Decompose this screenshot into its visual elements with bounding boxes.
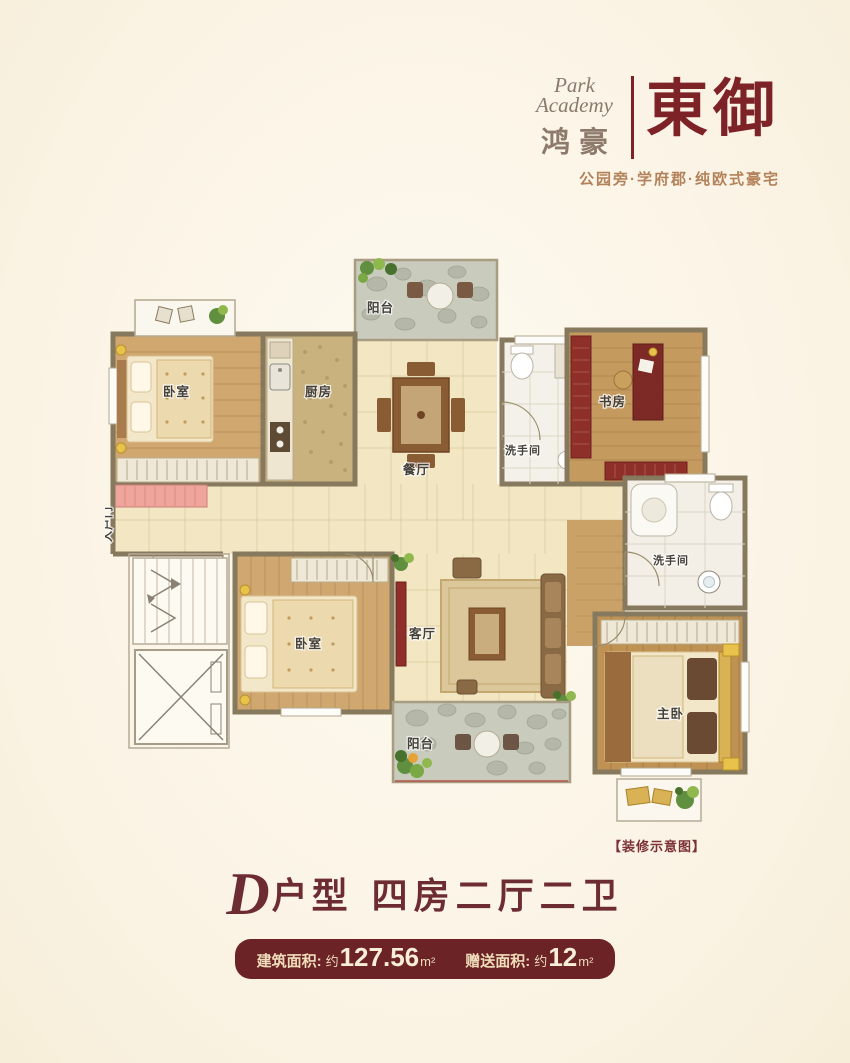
gift-area-value: 12: [548, 942, 577, 973]
room-balcony-top: 阳台: [355, 258, 497, 340]
gift-area: 赠送面积: 约 12 m²: [465, 942, 593, 973]
kitchen-counter: [267, 338, 293, 480]
room-label: 书房: [599, 394, 626, 409]
brand-tagline: 公园旁·学府郡·纯欧式豪宅: [518, 168, 780, 189]
built-area-value: 127.56: [340, 942, 420, 973]
brand-left: Park Academy 鸿豪: [532, 72, 617, 161]
room-label: 阳台: [367, 300, 394, 315]
unit-letter: D: [226, 861, 269, 927]
brand-row: Park Academy 鸿豪 東御: [518, 72, 780, 161]
bay-window: [135, 300, 235, 336]
tv-console: [396, 582, 406, 666]
footer: D户型四房二厅二卫 建筑面积: 约 127.56 m² 赠送面积: 约 12 m…: [0, 860, 850, 979]
brand-name-en: Park Academy: [532, 76, 617, 116]
elevator: [135, 650, 227, 744]
window: [701, 356, 709, 452]
pink-cabinet: [115, 485, 207, 507]
room-bedroom-top: 卧室: [109, 300, 263, 484]
floor-plan: 阳台: [105, 252, 755, 827]
window: [109, 368, 117, 424]
room-bedroom-mid: 卧室: [235, 554, 392, 716]
bookshelf: [571, 336, 591, 458]
gift-area-approx: 约: [534, 951, 547, 970]
bed: [116, 345, 213, 453]
brand-header: Park Academy 鸿豪 東御 公园旁·学府郡·纯欧式豪宅: [518, 72, 780, 189]
window: [665, 474, 715, 482]
room-balcony-bottom: 阳台: [393, 702, 570, 782]
outdoor-pad: [617, 779, 701, 821]
room-label: 洗手间: [505, 443, 541, 457]
entry-label: 入户门: [105, 506, 114, 542]
window: [621, 768, 691, 776]
area-badge: 建筑面积: 约 127.56 m² 赠送面积: 约 12 m²: [235, 939, 616, 979]
unit-suffix: 户型: [272, 876, 352, 916]
unit-title: D户型四房二厅二卫: [0, 860, 850, 929]
wardrobe: [601, 620, 739, 644]
floor-plan-svg: 阳台: [105, 252, 755, 827]
window: [281, 708, 341, 716]
room-label: 厨房: [305, 384, 332, 399]
gift-area-unit: m²: [578, 954, 593, 969]
window: [515, 336, 565, 344]
sink-bowl: [704, 577, 715, 588]
gift-area-label: 赠送面积:: [465, 950, 530, 971]
room-kitchen: 厨房: [263, 334, 355, 484]
room-label: 卧室: [295, 636, 322, 651]
built-area-unit: m²: [420, 954, 435, 969]
unit-description: 四房二厅二卫: [372, 876, 624, 916]
project-name: 東御: [646, 72, 780, 161]
built-area-label: 建筑面积:: [257, 950, 322, 971]
room-label: 餐厅: [402, 462, 430, 477]
coffee-table: [469, 608, 505, 660]
room-label: 洗手间: [653, 553, 689, 567]
brand-name-en-line2: Academy: [532, 96, 617, 116]
wardrobe: [117, 458, 259, 482]
window: [741, 662, 749, 732]
toilet: [709, 484, 733, 520]
decor-note: 【装修示意图】: [608, 836, 706, 855]
room-label: 卧室: [163, 384, 190, 399]
room-label: 主卧: [657, 706, 684, 721]
room-bath-right: 洗手间: [625, 474, 745, 608]
poster: Park Academy 鸿豪 東御 公园旁·学府郡·纯欧式豪宅: [0, 0, 850, 1063]
room-label: 阳台: [407, 736, 434, 751]
bathtub: [631, 484, 677, 536]
brand-name-cn: 鸿豪: [532, 119, 617, 161]
room-master: 主卧: [595, 614, 749, 776]
built-area: 建筑面积: 约 127.56 m²: [257, 942, 436, 973]
room-study: 书房: [567, 330, 709, 484]
room-label: 客厅: [408, 626, 436, 641]
brand-divider: [631, 76, 634, 159]
toilet: [511, 346, 533, 379]
built-area-approx: 约: [326, 951, 339, 970]
